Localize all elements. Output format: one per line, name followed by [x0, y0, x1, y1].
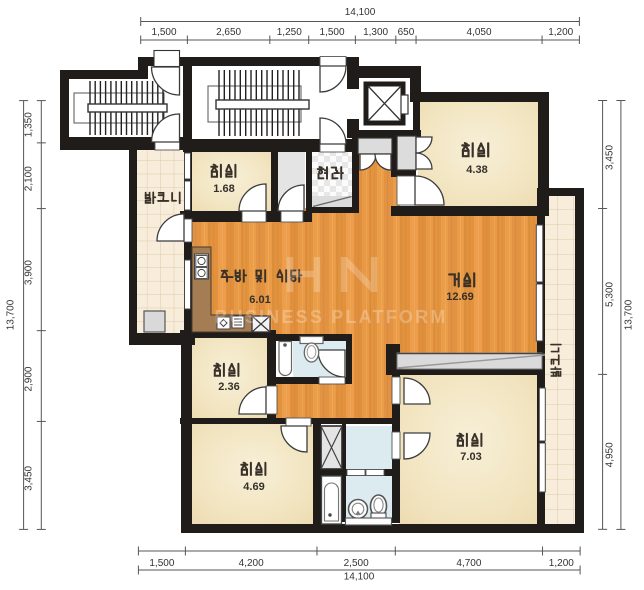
- svg-text:1,200: 1,200: [549, 558, 574, 569]
- svg-text:4,200: 4,200: [239, 558, 264, 569]
- svg-text:1,250: 1,250: [277, 27, 302, 38]
- svg-text:13,700: 13,700: [624, 299, 635, 330]
- svg-text:2,650: 2,650: [216, 27, 241, 38]
- svg-text:12.69: 12.69: [446, 291, 474, 303]
- svg-text:2,900: 2,900: [24, 366, 35, 391]
- svg-text:BUSINESS PLATFORM: BUSINESS PLATFORM: [214, 307, 447, 327]
- svg-text:1,200: 1,200: [548, 27, 573, 38]
- svg-text:4,950: 4,950: [605, 442, 616, 467]
- svg-text:2.36: 2.36: [218, 381, 239, 393]
- svg-text:14,100: 14,100: [344, 572, 375, 583]
- svg-text:13,700: 13,700: [6, 299, 17, 330]
- svg-text:6.01: 6.01: [249, 294, 270, 306]
- svg-text:1,300: 1,300: [363, 27, 388, 38]
- svg-text:7.03: 7.03: [460, 451, 481, 463]
- svg-text:1,350: 1,350: [24, 112, 35, 137]
- svg-text:1,500: 1,500: [152, 27, 177, 38]
- svg-text:1,500: 1,500: [320, 27, 345, 38]
- svg-text:4.38: 4.38: [466, 164, 487, 176]
- svg-text:14,100: 14,100: [345, 7, 376, 18]
- svg-text:1,500: 1,500: [149, 558, 174, 569]
- svg-text:3,450: 3,450: [605, 145, 616, 170]
- svg-text:4,700: 4,700: [456, 558, 481, 569]
- svg-text:650: 650: [398, 27, 415, 38]
- svg-text:1.68: 1.68: [213, 183, 234, 195]
- svg-text:4.69: 4.69: [243, 481, 264, 493]
- svg-text:3,900: 3,900: [24, 260, 35, 285]
- svg-text:3,450: 3,450: [24, 465, 35, 490]
- svg-text:2,500: 2,500: [344, 558, 369, 569]
- svg-text:5,300: 5,300: [605, 281, 616, 306]
- svg-text:2,100: 2,100: [24, 166, 35, 191]
- svg-text:4,050: 4,050: [467, 27, 492, 38]
